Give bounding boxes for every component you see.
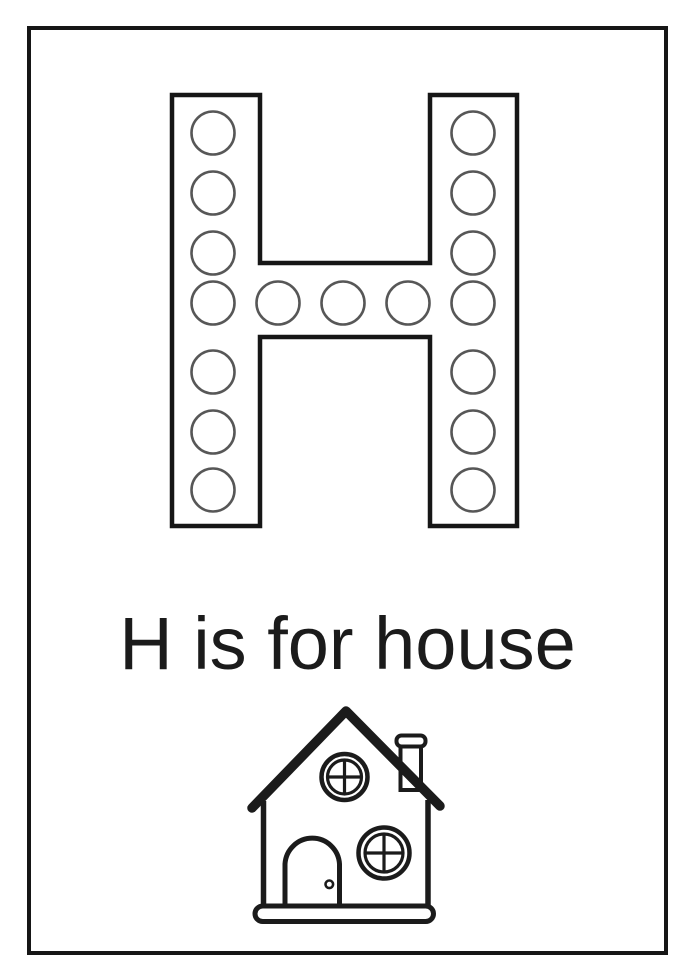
dot-marker-circle[interactable] <box>452 411 495 454</box>
dot-marker-circle[interactable] <box>452 351 495 394</box>
dot-marker-circle[interactable] <box>192 411 235 454</box>
dot-marker-circle[interactable] <box>192 172 235 215</box>
dot-marker-circle[interactable] <box>452 232 495 275</box>
dot-marker-circle[interactable] <box>322 282 365 325</box>
gable-round-window <box>322 754 368 800</box>
door-knob <box>326 881 334 889</box>
house-door <box>285 838 340 909</box>
worksheet-artwork <box>0 0 693 980</box>
dot-marker-circle[interactable] <box>192 351 235 394</box>
dot-marker-circle[interactable] <box>452 112 495 155</box>
dot-marker-circle[interactable] <box>452 172 495 215</box>
worksheet-page: H is for house <box>0 0 693 980</box>
dot-marker-circle[interactable] <box>192 469 235 512</box>
chimney-cap <box>397 736 426 747</box>
side-round-window <box>359 828 410 879</box>
foundation-base <box>255 906 434 922</box>
dot-marker-circle[interactable] <box>452 282 495 325</box>
dot-marker-circle[interactable] <box>192 282 235 325</box>
dot-marker-circle[interactable] <box>452 469 495 512</box>
dot-marker-circle[interactable] <box>192 112 235 155</box>
caption-text: H is for house <box>27 607 668 681</box>
house-illustration <box>252 711 440 922</box>
dot-marker-circle[interactable] <box>257 282 300 325</box>
dot-marker-circle[interactable] <box>192 232 235 275</box>
dot-marker-circle[interactable] <box>387 282 430 325</box>
